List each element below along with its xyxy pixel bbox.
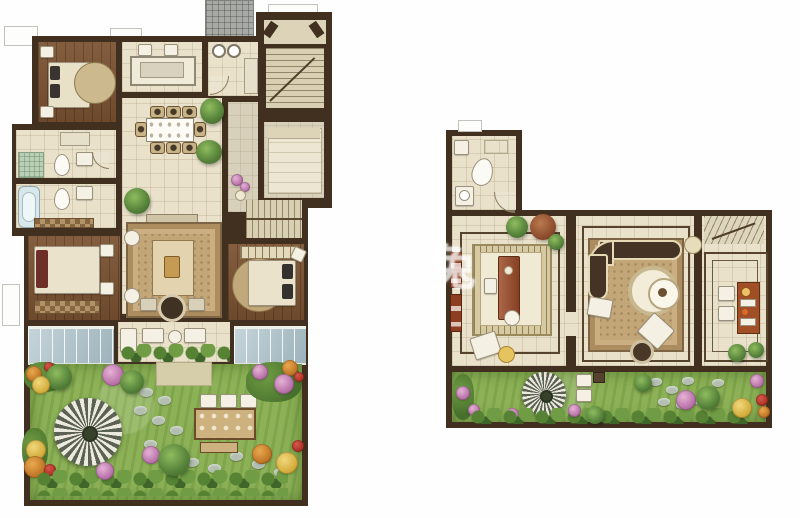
flower-red bbox=[756, 394, 768, 406]
garden-seat bbox=[576, 389, 592, 402]
washer-unit bbox=[454, 140, 469, 155]
flower-pink bbox=[568, 404, 581, 417]
indoor-plant bbox=[728, 344, 746, 362]
indoor-plant bbox=[548, 234, 564, 250]
garden-hedge-row bbox=[470, 408, 750, 424]
garden-seat bbox=[576, 374, 592, 387]
table-centerpiece bbox=[658, 288, 667, 297]
bar-seat bbox=[718, 286, 735, 301]
fire-bowl bbox=[630, 340, 654, 364]
side-table bbox=[498, 346, 515, 363]
indoor-plant bbox=[506, 216, 528, 238]
bar-bowl bbox=[741, 287, 751, 297]
bar-tray bbox=[740, 318, 756, 326]
curved-sofa-arm bbox=[588, 254, 608, 300]
flower-orange bbox=[758, 406, 770, 418]
indoor-plant bbox=[748, 342, 764, 358]
garden-tree bbox=[696, 386, 720, 410]
flower-pink bbox=[750, 374, 764, 388]
watermark-text: 兔 bbox=[428, 244, 488, 304]
internal-wall bbox=[566, 216, 576, 312]
garden-tree bbox=[634, 374, 652, 392]
flower-pink bbox=[456, 386, 470, 400]
tea-set bbox=[504, 266, 513, 275]
round-ottoman bbox=[684, 236, 702, 254]
flower-pink bbox=[676, 390, 696, 410]
bar-tray bbox=[740, 299, 756, 307]
bar-bottle bbox=[742, 309, 748, 315]
floor-plan-image: 兔 bbox=[0, 0, 800, 518]
sink-basin bbox=[459, 190, 470, 201]
bar-seat bbox=[718, 306, 735, 321]
garden-tree bbox=[586, 406, 604, 424]
lounge-chair bbox=[587, 296, 614, 319]
flower-yellow bbox=[732, 398, 752, 418]
parasol-center bbox=[540, 390, 553, 403]
floor-cushion bbox=[504, 310, 520, 326]
internal-wall bbox=[566, 336, 576, 366]
step-tiles bbox=[484, 140, 508, 154]
garden-table bbox=[593, 372, 605, 383]
entry-step bbox=[458, 120, 482, 132]
right-plan: 兔 bbox=[0, 0, 800, 518]
